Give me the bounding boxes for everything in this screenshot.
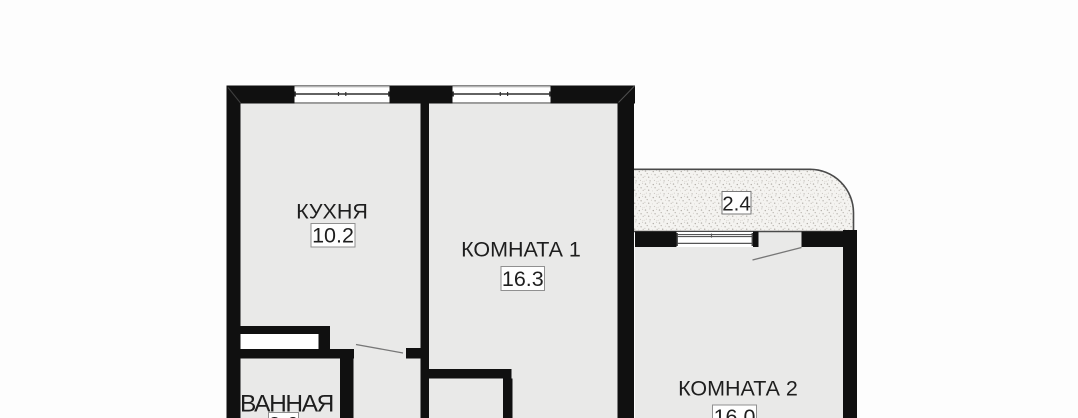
svg-text:КОМНАТА 2: КОМНАТА 2 [678,377,798,401]
svg-text:КОМНАТА 1: КОМНАТА 1 [461,238,581,262]
svg-text:10.2: 10.2 [312,224,354,248]
svg-text:16.3: 16.3 [502,267,544,291]
svg-text:16.0: 16.0 [714,405,756,418]
svg-text:КУХНЯ: КУХНЯ [296,200,368,224]
svg-text:2.4: 2.4 [722,192,751,215]
svg-text:2.6: 2.6 [269,413,299,418]
